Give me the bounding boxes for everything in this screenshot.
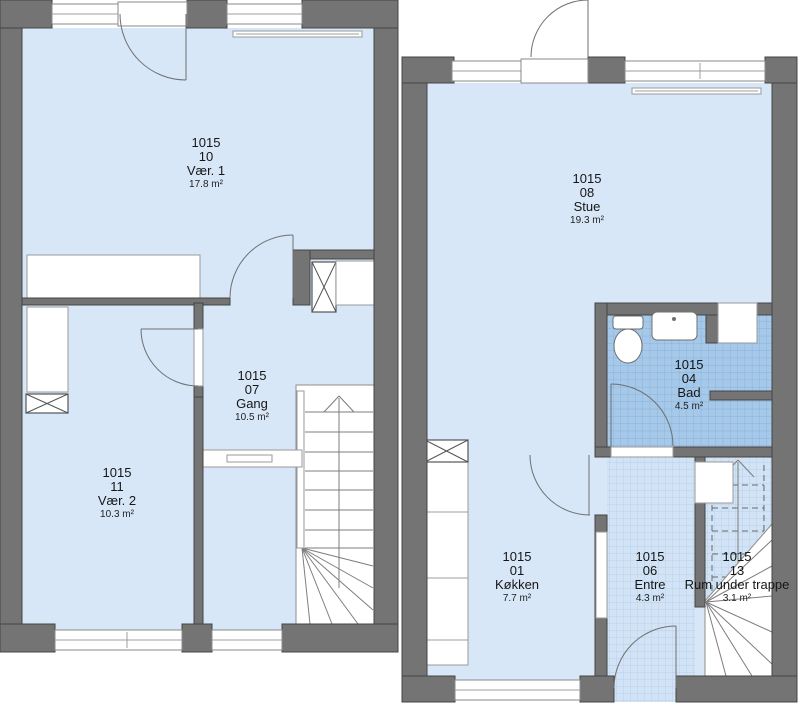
wall [588, 57, 625, 83]
room-name: Bad [677, 385, 700, 400]
wall [595, 303, 607, 457]
sidelight [596, 532, 607, 618]
wall [194, 303, 203, 329]
wall [402, 676, 455, 702]
wall [293, 250, 310, 305]
room-area: 4.5 m² [675, 401, 704, 412]
room-area: 7.7 m² [503, 593, 532, 604]
wall [706, 315, 718, 343]
wall [676, 676, 797, 702]
room-number: 07 [245, 382, 259, 397]
wall [673, 447, 772, 457]
window [227, 4, 302, 24]
room-name: Vær. 2 [98, 493, 136, 508]
wall [0, 624, 55, 652]
wall [765, 57, 797, 83]
room-area: 3.1 m² [723, 593, 752, 604]
door-recess [521, 59, 588, 83]
curtain-rail-vaer1 [233, 31, 362, 37]
shaft-box-koekken [425, 440, 468, 462]
room-area: 10.3 m² [100, 509, 135, 520]
wall [0, 0, 22, 652]
room-label-stue: 1015 08 Stue 19.3 m² [570, 171, 605, 226]
room-number: 08 [580, 185, 594, 200]
window [455, 680, 580, 700]
window [212, 630, 282, 650]
door-main-entry-top [531, 0, 588, 57]
room-number: 06 [643, 563, 657, 578]
room-label-vaer-1: 1015 10 Vær. 1 17.8 m² [187, 135, 225, 190]
room-name: Gang [236, 396, 268, 411]
wall [194, 397, 203, 624]
room-unit: 1015 [238, 368, 267, 383]
room-unit: 1015 [192, 135, 221, 150]
room-name: Køkken [495, 577, 539, 592]
niche [336, 261, 374, 305]
room-label-entre: 1015 06 Entre 4.3 m² [634, 549, 665, 604]
room-area: 17.8 m² [189, 179, 224, 190]
curtain-rail-stue [632, 88, 761, 94]
room-unit: 1015 [675, 357, 704, 372]
window [52, 4, 118, 24]
wardrobe-vaer2 [27, 307, 68, 392]
room-name: Vær. 1 [187, 163, 225, 178]
room-number: 10 [199, 149, 213, 164]
niche-bad [718, 303, 757, 343]
wall [595, 447, 611, 457]
wall [580, 676, 614, 702]
room-unit: 1015 [723, 549, 752, 564]
floor-plan-canvas: 1015 10 Vær. 1 17.8 m² 1015 11 Vær. 2 10… [0, 0, 800, 709]
window [625, 61, 765, 81]
room-unit: 1015 [573, 171, 602, 186]
kitchen-cabinets [427, 462, 468, 665]
floor-plan-drawing: 1015 10 Vær. 1 17.8 m² 1015 11 Vær. 2 10… [0, 0, 800, 709]
wall [282, 624, 398, 652]
gang-interior-window [203, 450, 302, 467]
shaft-box-vaer1 [312, 262, 336, 312]
wall [194, 386, 203, 397]
room-unit: 1015 [503, 549, 532, 564]
stair-landing-box [695, 462, 733, 503]
room-label-gang: 1015 07 Gang 10.5 m² [235, 368, 270, 423]
room-number: 01 [510, 563, 524, 578]
wall [402, 57, 427, 702]
room-number: 13 [730, 563, 744, 578]
left-unit [0, 0, 398, 652]
room-area: 19.3 m² [570, 215, 605, 226]
room-number: 11 [110, 479, 124, 494]
shaft-box-vaer2 [26, 394, 68, 413]
room-label-bad: 1015 04 Bad 4.5 m² [675, 357, 704, 412]
wall [402, 57, 454, 83]
room-area: 10.5 m² [235, 412, 270, 423]
window [55, 630, 182, 650]
wall [187, 0, 227, 28]
wall [772, 57, 797, 702]
room-number: 04 [682, 371, 696, 386]
stair-handrail-left [297, 391, 304, 548]
room-unit: 1015 [103, 465, 132, 480]
toilet-icon [613, 316, 643, 363]
room-name: Entre [634, 577, 665, 592]
window [452, 61, 521, 81]
room-name: Rum under trappe [685, 577, 790, 592]
room-label-vaer-2: 1015 11 Vær. 2 10.3 m² [98, 465, 136, 520]
door-jamb [611, 447, 673, 457]
door-recess [118, 2, 187, 26]
wall [374, 0, 398, 652]
staircase-left [296, 385, 374, 624]
room-unit: 1015 [636, 549, 665, 564]
wall [302, 0, 398, 28]
wall [182, 624, 212, 652]
entry-threshold [614, 690, 676, 702]
room-area: 4.3 m² [636, 593, 665, 604]
wall [710, 391, 772, 400]
room-name: Stue [574, 199, 601, 214]
wall [0, 0, 52, 28]
wardrobe-vaer1 [27, 255, 200, 298]
sink-icon [652, 312, 697, 340]
door-jamb [194, 329, 203, 386]
